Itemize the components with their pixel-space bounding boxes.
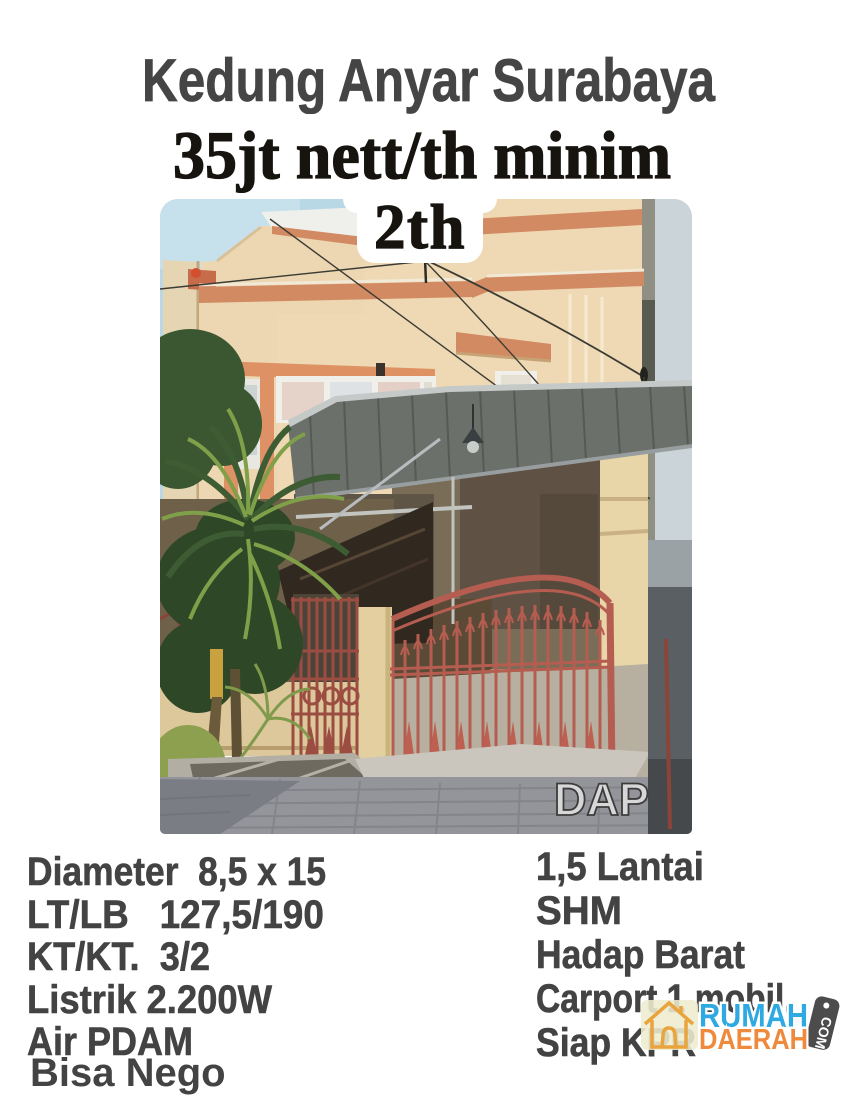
- svg-text:DAP: DAP: [554, 774, 649, 825]
- svg-text:DAERAH: DAERAH: [699, 1024, 808, 1056]
